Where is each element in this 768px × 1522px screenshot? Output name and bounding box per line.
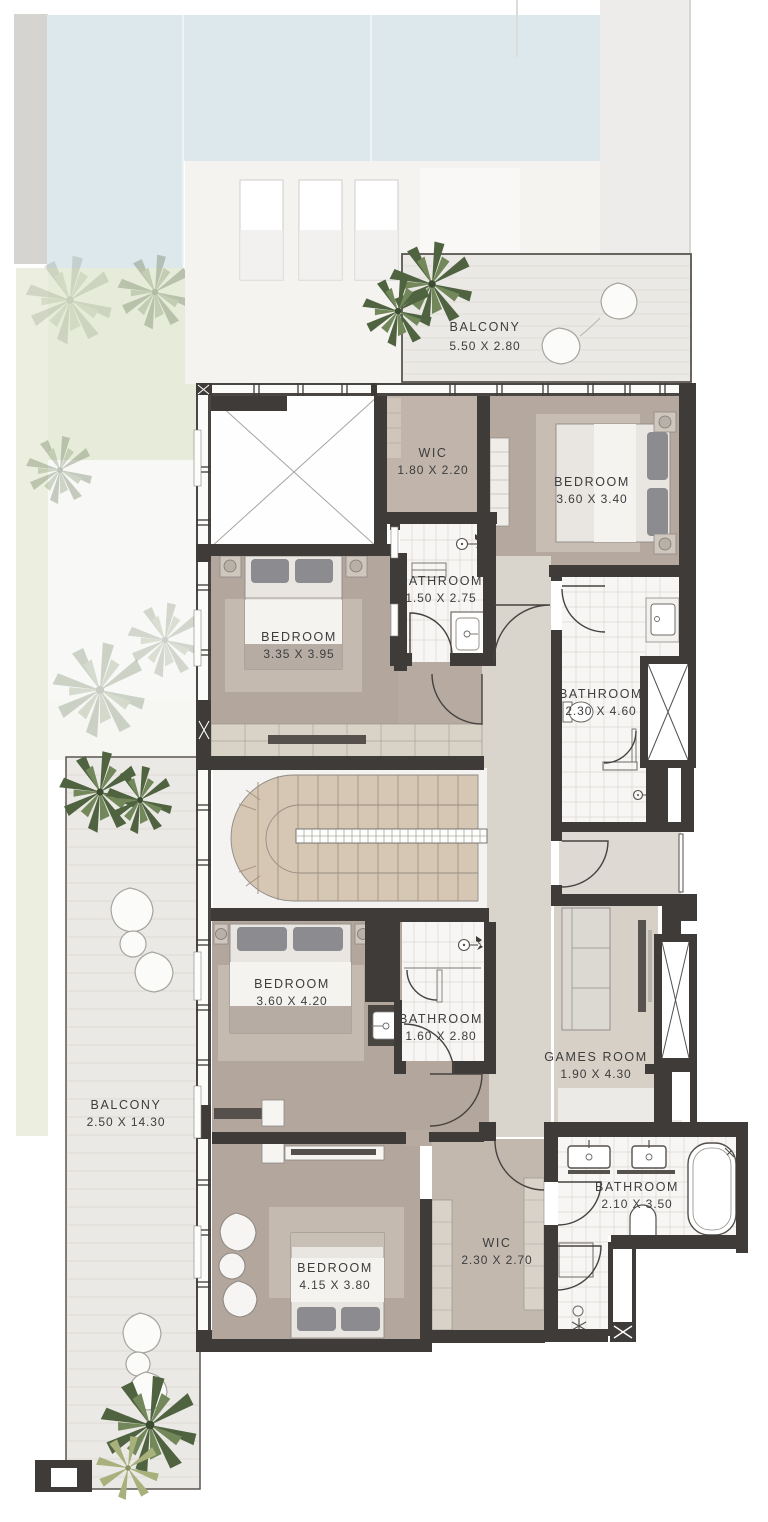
svg-text:BEDROOM: BEDROOM [297, 1261, 373, 1275]
svg-text:BEDROOM: BEDROOM [554, 475, 630, 489]
svg-text:BEDROOM: BEDROOM [261, 630, 337, 644]
svg-text:BATHROOM: BATHROOM [399, 574, 483, 588]
svg-text:WIC: WIC [482, 1236, 511, 1250]
svg-text:3.60 X 4.20: 3.60 X 4.20 [256, 994, 327, 1008]
svg-text:2.10 X 3.50: 2.10 X 3.50 [601, 1197, 672, 1211]
svg-text:BATHROOM: BATHROOM [399, 1012, 483, 1026]
svg-text:2.50 X 14.30: 2.50 X 14.30 [87, 1115, 166, 1129]
svg-text:1.60 X 2.80: 1.60 X 2.80 [405, 1029, 476, 1043]
svg-text:GAMES ROOM: GAMES ROOM [544, 1050, 648, 1064]
svg-text:2.30 X 4.60: 2.30 X 4.60 [565, 704, 636, 718]
svg-text:1.50 X 2.75: 1.50 X 2.75 [405, 591, 476, 605]
svg-text:WIC: WIC [418, 446, 447, 460]
svg-text:1.90 X 4.30: 1.90 X 4.30 [560, 1067, 631, 1081]
svg-text:BALCONY: BALCONY [91, 1098, 162, 1112]
svg-text:BATHROOM: BATHROOM [595, 1180, 679, 1194]
svg-text:2.30 X 2.70: 2.30 X 2.70 [461, 1253, 532, 1267]
svg-text:4.15 X 3.80: 4.15 X 3.80 [299, 1278, 370, 1292]
svg-text:BALCONY: BALCONY [450, 320, 521, 334]
svg-text:1.80 X 2.20: 1.80 X 2.20 [397, 463, 468, 477]
svg-text:BEDROOM: BEDROOM [254, 977, 330, 991]
svg-text:3.35 X 3.95: 3.35 X 3.95 [263, 647, 334, 661]
svg-text:BATHROOM: BATHROOM [559, 687, 643, 701]
svg-text:3.60 X 3.40: 3.60 X 3.40 [556, 492, 627, 506]
svg-text:5.50 X 2.80: 5.50 X 2.80 [449, 339, 520, 353]
